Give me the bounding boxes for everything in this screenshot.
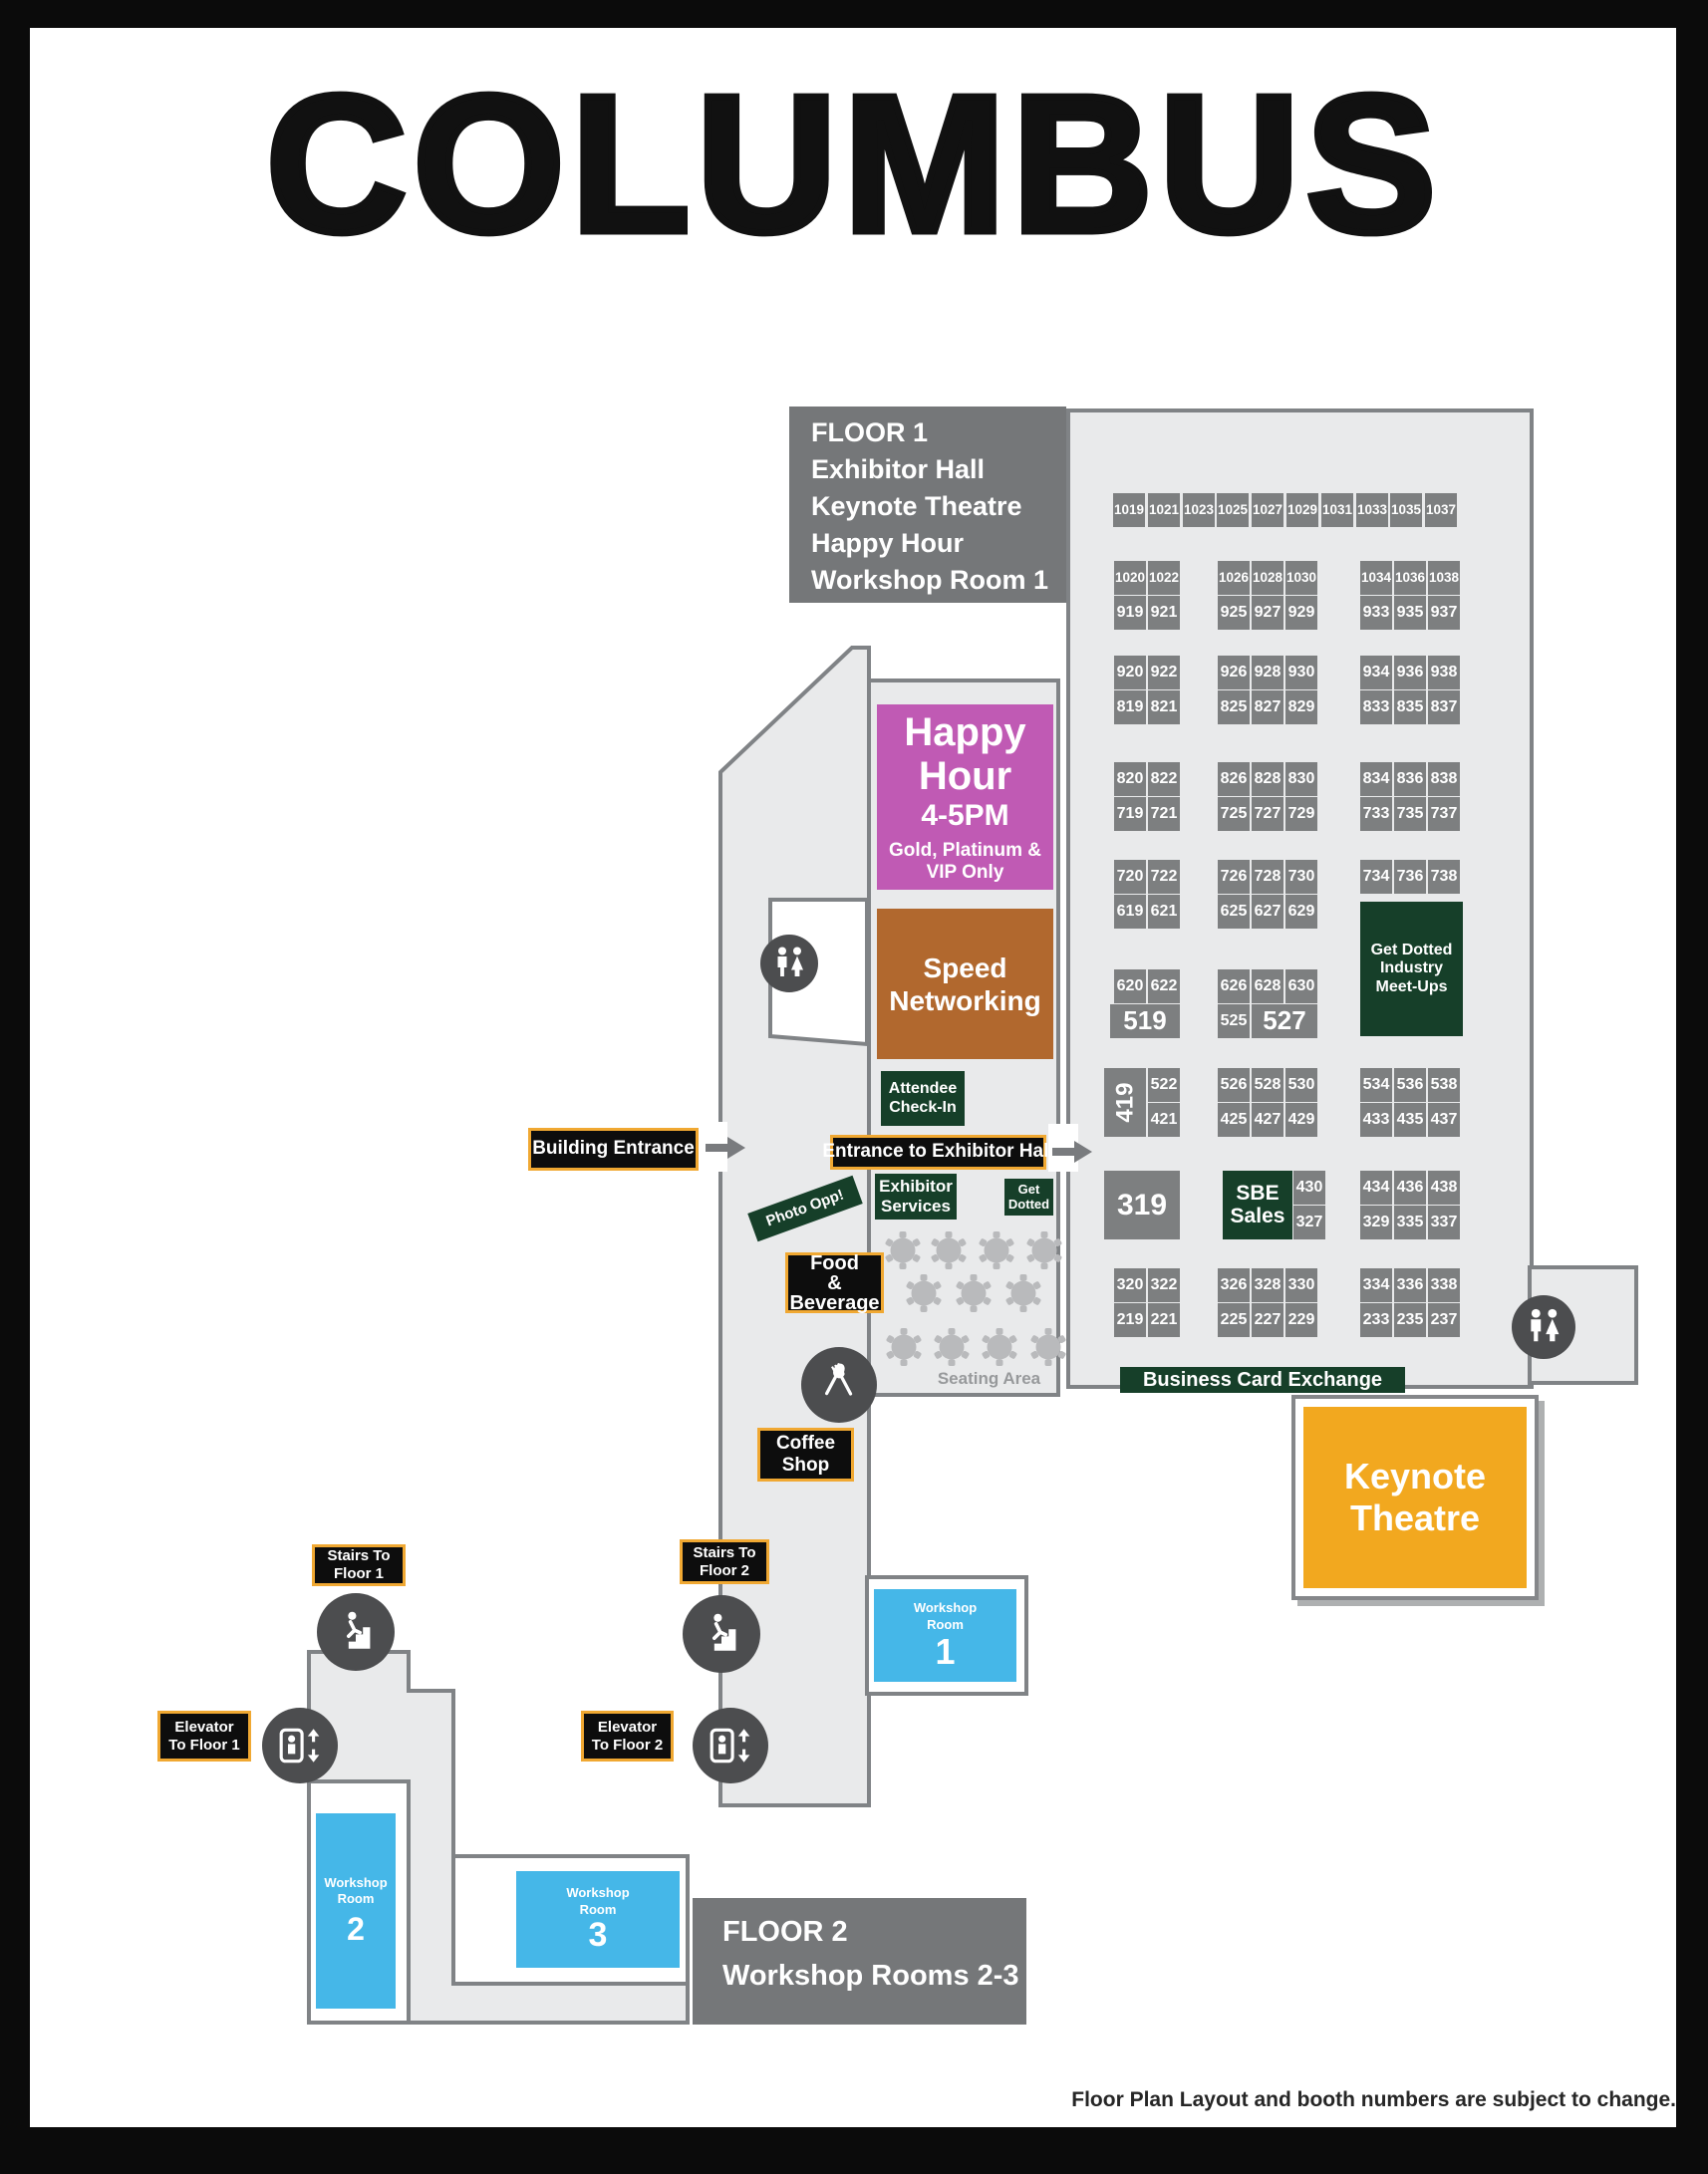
seating-area-tables: [0, 0, 1708, 2174]
elevator-icon: [262, 1708, 338, 1783]
table-icon: [886, 1328, 922, 1366]
table-icon: [1030, 1328, 1066, 1366]
attendee-checkin-sign: Attendee Check-In: [881, 1071, 965, 1126]
table-icon: [1026, 1231, 1062, 1269]
elevator-to-floor1-sign: Elevator To Floor 1: [157, 1711, 251, 1762]
speed-networking-room: Speed Networking: [877, 909, 1053, 1059]
stairs-to-floor2-sign: Stairs To Floor 2: [680, 1539, 769, 1584]
restroom-icon: [760, 935, 818, 992]
workshop-room-1: Workshop Room 1: [874, 1589, 1016, 1682]
happy-hour-title: Happy Hour: [877, 710, 1053, 798]
stairs-icon: [317, 1593, 395, 1671]
get-dotted-meetups-room: Get Dotted Industry Meet-Ups: [1360, 902, 1463, 1036]
food-beverage-sign: Food & Beverage: [785, 1252, 884, 1313]
speed-networking-label: Speed Networking: [877, 951, 1053, 1017]
keynote-theatre-room: Keynote Theatre: [1291, 1395, 1539, 1600]
elevator-icon: [693, 1708, 768, 1783]
table-icon: [931, 1231, 967, 1269]
business-card-exchange-sign: Business Card Exchange: [1120, 1367, 1405, 1393]
table-icon: [1005, 1274, 1041, 1312]
seating-area-label: Seating Area: [922, 1369, 1056, 1389]
happy-hour-room: Happy Hour 4-5PM Gold, Platinum & VIP On…: [877, 704, 1053, 890]
coffee-shop-sign: Coffee Shop: [757, 1428, 854, 1482]
workshop-room-3: Workshop Room 3: [516, 1871, 680, 1968]
exhibitor-hall-arrow-icon: [1052, 1138, 1092, 1166]
stairs-to-floor1-sign: Stairs To Floor 1: [312, 1544, 406, 1586]
table-icon: [934, 1328, 970, 1366]
happy-hour-restriction: Gold, Platinum & VIP Only: [877, 840, 1053, 884]
get-dotted-sign: Get Dotted: [1004, 1179, 1053, 1216]
table-icon: [885, 1231, 921, 1269]
workshop-room-2: Workshop Room 2: [316, 1813, 396, 2009]
building-entrance-arrow-icon: [706, 1134, 745, 1162]
building-entrance-sign: Building Entrance: [528, 1128, 699, 1171]
table-icon: [979, 1231, 1014, 1269]
table-icon: [982, 1328, 1017, 1366]
exhibitor-hall-entrance-sign: Entrance to Exhibitor Hall: [830, 1135, 1046, 1170]
food-icon: [801, 1347, 877, 1423]
keynote-theatre-box: Keynote Theatre: [1303, 1407, 1527, 1588]
floor2-legend: FLOOR 2 Workshop Rooms 2-3: [693, 1898, 1026, 2025]
stairs-icon: [683, 1595, 760, 1673]
exhibitor-services-sign: Exhibitor Services: [875, 1174, 957, 1220]
table-icon: [956, 1274, 992, 1312]
floor-plan-page: COLUMBUS FLOOR 1 Exhibitor Hall Keynote …: [0, 0, 1708, 2174]
happy-hour-time: 4-5PM: [921, 798, 1008, 834]
elevator-to-floor2-sign: Elevator To Floor 2: [581, 1711, 674, 1762]
restroom-icon: [1512, 1295, 1575, 1359]
footer-disclaimer: Floor Plan Layout and booth numbers are …: [897, 2088, 1676, 2112]
table-icon: [906, 1274, 942, 1312]
